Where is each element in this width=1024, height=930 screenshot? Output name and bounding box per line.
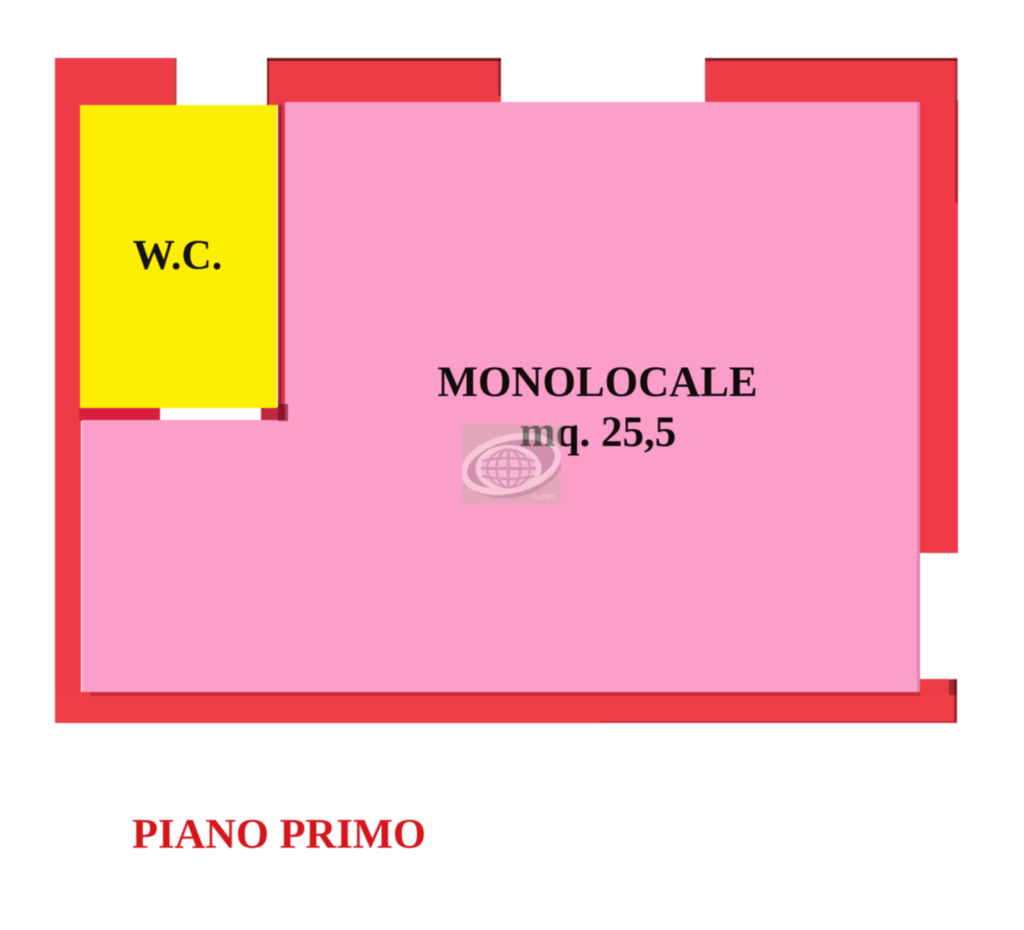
svg-text:GLOBO: GLOBO — [532, 495, 557, 501]
